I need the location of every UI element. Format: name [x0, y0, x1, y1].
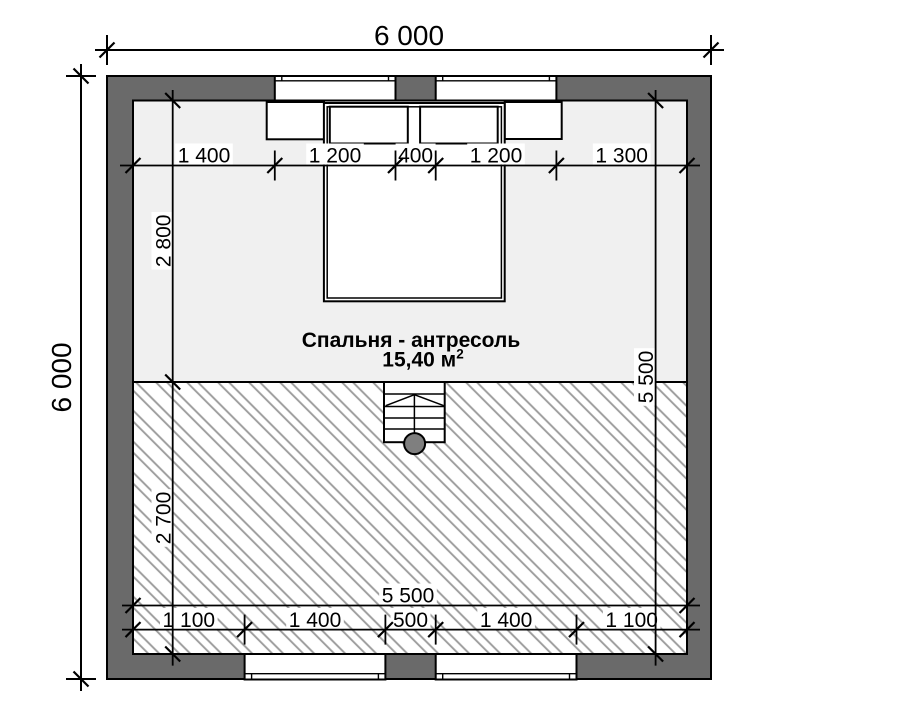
svg-text:400: 400 [398, 145, 433, 168]
svg-text:1 400: 1 400 [178, 145, 231, 168]
svg-text:1 200: 1 200 [309, 145, 362, 168]
svg-text:5 500: 5 500 [382, 585, 435, 608]
svg-text:1 200: 1 200 [470, 145, 523, 168]
svg-text:1 100: 1 100 [163, 609, 216, 632]
svg-text:1 100: 1 100 [605, 609, 658, 632]
svg-text:6 000: 6 000 [46, 342, 77, 412]
svg-text:1 300: 1 300 [595, 145, 648, 168]
svg-text:6 000: 6 000 [374, 20, 444, 51]
svg-text:500: 500 [393, 609, 428, 632]
svg-text:5 500: 5 500 [635, 351, 658, 404]
svg-text:1 400: 1 400 [289, 609, 342, 632]
svg-text:1 400: 1 400 [480, 609, 533, 632]
svg-text:15,40 м2: 15,40 м2 [382, 347, 463, 372]
